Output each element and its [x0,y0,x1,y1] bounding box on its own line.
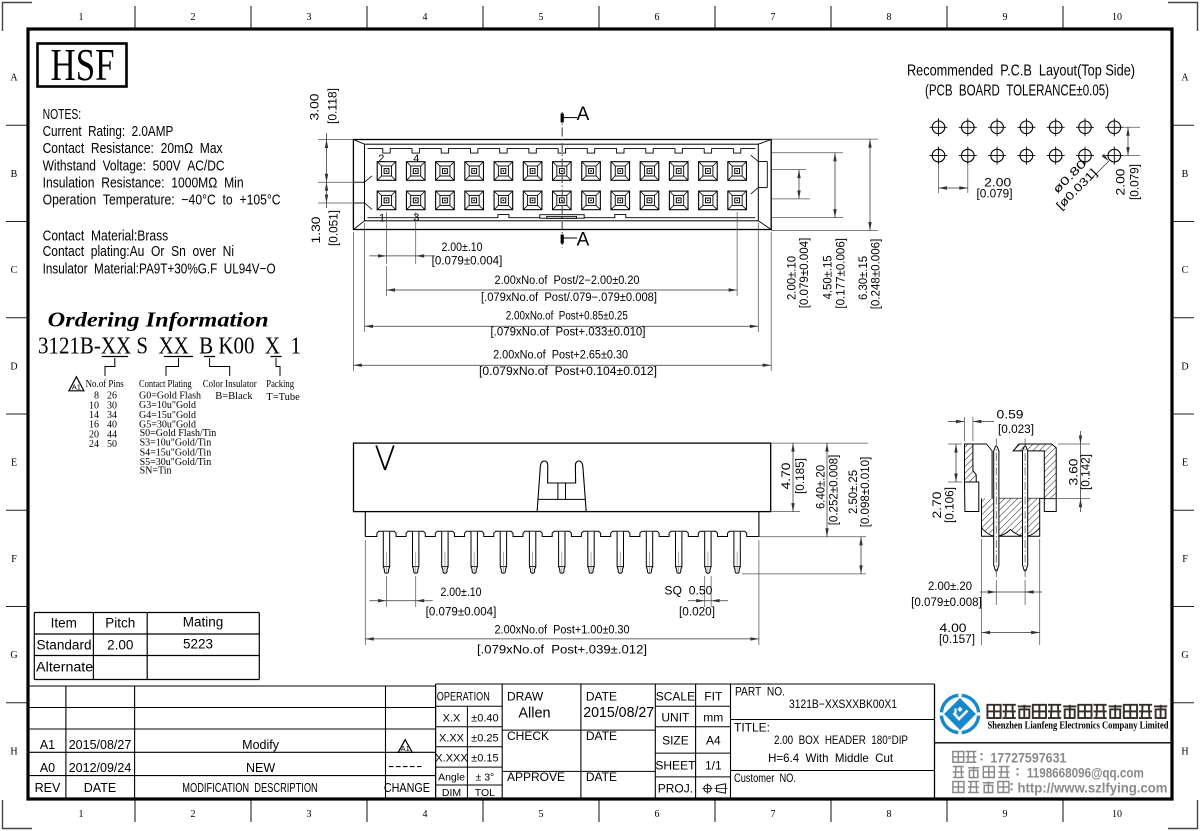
svg-text:E: E [1182,458,1188,469]
svg-text:Mating: Mating [183,615,224,630]
svg-text:SHEET: SHEET [655,759,696,773]
svg-text:3.00: 3.00 [310,94,322,121]
svg-text:2.00xNo.of Post+0.85±0.25: 2.00xNo.of Post+0.85±0.25 [506,310,628,322]
svg-text:APPROVE: APPROVE [507,770,565,784]
svg-text:SIZE: SIZE [662,734,689,748]
svg-text:PART NO.: PART NO. [735,685,785,699]
svg-text:[0.098±0.010]: [0.098±0.010] [860,457,872,528]
svg-text:B=Black: B=Black [215,391,253,402]
svg-text:4.50±.15: 4.50±.15 [823,255,835,299]
svg-text:2.00 BOX HEADER 180°DIP: 2.00 BOX HEADER 180°DIP [774,733,908,747]
svg-text:Ordering Information: Ordering Information [48,307,269,331]
svg-text:24: 24 [89,439,99,450]
svg-text:2.00: 2.00 [1115,169,1127,196]
svg-text:A: A [577,230,590,251]
svg-text:8: 8 [887,809,892,820]
svg-text:0.59: 0.59 [997,410,1024,422]
svg-text:[0.106]: [0.106] [945,487,957,523]
svg-text:SCALE: SCALE [656,690,695,704]
svg-text:Recommended P.C.B Layout(Top: Recommended P.C.B Layout(Top Side) [907,63,1135,80]
svg-text:[0.079±0.004]: [0.079±0.004] [799,238,811,309]
svg-text:A: A [577,104,590,125]
svg-text:SQ 0.50: SQ 0.50 [664,586,712,598]
svg-text:1/1: 1/1 [705,759,722,773]
svg-text:F: F [1182,554,1188,565]
svg-text:Contact Resistance: 20mΩ Ma: Contact Resistance: 20mΩ Max [43,141,224,157]
svg-text:[0.051]: [0.051] [328,210,340,246]
svg-text:3: 3 [413,212,419,224]
svg-text:X.XX: X.XX [439,732,465,744]
svg-text:2.70: 2.70 [932,492,944,519]
svg-text:1.30: 1.30 [311,217,323,244]
svg-text:H: H [10,746,17,757]
svg-text:[0.079±0.008]: [0.079±0.008] [911,597,982,609]
svg-text:TITLE:: TITLE: [734,721,770,735]
svg-text:6: 6 [655,809,660,820]
svg-text:[0.020]: [0.020] [679,607,715,619]
svg-text:REV: REV [35,781,61,795]
svg-text:Pitch: Pitch [105,616,135,631]
svg-text:A1: A1 [401,744,410,753]
svg-text:9: 9 [1003,12,1008,23]
svg-text:D: D [1181,361,1188,372]
svg-text:17727597631: 17727597631 [990,750,1066,765]
svg-text:5: 5 [539,12,544,23]
svg-text:[0.185]: [0.185] [795,458,807,494]
svg-text:10: 10 [1112,12,1122,23]
svg-text:T=Tube: T=Tube [266,392,300,403]
svg-text:No.of Pins: No.of Pins [86,379,124,390]
svg-text:6.30±.15: 6.30±.15 [858,256,870,300]
svg-text:Operation Temperature: −40°C: Operation Temperature: −40°C to +105°C [43,192,281,208]
svg-text:2.00xNo.of Post+1.00±0.30: 2.00xNo.of Post+1.00±0.30 [495,625,630,637]
svg-text:1: 1 [79,809,84,820]
svg-text:4: 4 [413,153,419,165]
svg-text:[0.248±0.006]: [0.248±0.006] [871,239,883,310]
svg-text:6: 6 [655,12,660,23]
svg-text:Angle: Angle [438,771,465,783]
svg-text:TOL: TOL [475,787,495,799]
svg-text:Withstand Voltage: 500V AC/: Withstand Voltage: 500V AC/DC [43,158,225,174]
svg-text:A: A [1181,73,1189,84]
svg-text:[0.177±0.006]: [0.177±0.006] [836,238,848,309]
svg-text:NOTES:: NOTES: [43,107,82,123]
svg-text:[0.118]: [0.118] [328,88,340,124]
svg-text:CHECK: CHECK [507,729,549,743]
svg-text:(PCB BOARD TOLERANCE±0.05): (PCB BOARD TOLERANCE±0.05) [925,83,1109,100]
svg-text:X.XXX: X.XXX [435,752,468,764]
svg-text:G: G [10,650,17,661]
svg-text:DIM: DIM [442,787,461,799]
svg-text:OPERATION: OPERATION [437,690,490,704]
svg-text:3121B-XX S XX B K00 X 1: 3121B-XX S XX B K00 X 1 [38,334,301,360]
svg-text:6.40±.20: 6.40±.20 [816,465,828,509]
svg-text:2.00xNo.of Post/2−2.00±0.20: 2.00xNo.of Post/2−2.00±0.20 [495,275,640,287]
svg-text:4.70: 4.70 [781,463,793,490]
svg-text:DATE: DATE [586,770,617,784]
svg-text:2.00±.10: 2.00±.10 [441,587,482,599]
svg-text:DRAW: DRAW [507,690,544,704]
svg-text:±0.40: ±0.40 [471,712,498,724]
svg-text:[0.252±0.008]: [0.252±0.008] [829,455,841,526]
svg-text:Alternate: Alternate [36,660,93,675]
svg-text:E: E [11,458,17,469]
svg-text:8: 8 [887,12,892,23]
svg-text:Shenzhen Lianfeng Electronics: Shenzhen Lianfeng Electronics Company Li… [988,721,1169,732]
svg-text:mm: mm [703,710,723,724]
svg-text:[0.079±0.004]: [0.079±0.004] [432,255,503,267]
svg-text:G: G [1181,650,1188,661]
svg-text:Insulation Resistance: 1000M: Insulation Resistance: 1000MΩ Min [43,175,244,191]
svg-text:[0.157]: [0.157] [939,634,975,646]
svg-text:7: 7 [771,809,776,820]
svg-text:[0.079]: [0.079] [1129,164,1141,200]
svg-text:± 3°: ± 3° [476,771,495,783]
svg-text:7: 7 [771,12,776,23]
svg-text:B: B [11,169,18,180]
svg-text:A1: A1 [72,382,81,391]
svg-text:A1: A1 [40,738,55,752]
svg-text:2: 2 [378,153,384,165]
svg-text:3.60: 3.60 [1069,459,1081,486]
svg-text:B: B [1182,169,1189,180]
svg-text:2.50±.25: 2.50±.25 [848,470,860,514]
svg-text:2: 2 [191,809,196,820]
svg-text:CHANGE: CHANGE [384,781,430,795]
svg-text:Allen: Allen [518,706,550,722]
svg-text:2.00±.10: 2.00±.10 [442,242,483,254]
svg-text:3: 3 [307,809,312,820]
svg-text:DATE: DATE [84,781,116,795]
svg-text:FIT: FIT [704,690,723,704]
svg-text:SN=Tin: SN=Tin [140,465,172,476]
svg-text:Color Insulator: Color Insulator [203,379,257,390]
svg-text:F: F [11,554,17,565]
svg-text:[0.079]: [0.079] [977,188,1013,200]
svg-text:Contact Plating: Contact Plating [139,379,192,390]
svg-text:2.00±.20: 2.00±.20 [928,581,972,593]
svg-text:HSF: HSF [51,39,115,90]
svg-text:2015/08/27: 2015/08/27 [583,705,654,721]
svg-text:Insulator Material:PA9T+30%G.: Insulator Material:PA9T+30%G.F UL94V−O [43,261,276,277]
svg-text:4: 4 [423,809,428,820]
svg-text:A4: A4 [706,734,721,748]
svg-text:A0: A0 [40,761,55,775]
svg-text:UNIT: UNIT [661,710,690,724]
svg-text:2015/08/27: 2015/08/27 [69,738,132,752]
svg-text:5223: 5223 [183,637,213,652]
svg-text:DATE: DATE [586,690,617,704]
svg-text:Contact plating:Au Or Sn o: Contact plating:Au Or Sn over Ni [43,244,234,260]
svg-text:[0.079xNo.of Post+0.104±0.012: [0.079xNo.of Post+0.104±0.012] [479,366,657,378]
svg-text:[0.142]: [0.142] [1081,454,1093,490]
svg-text:D: D [10,361,17,372]
svg-text:9: 9 [1003,809,1008,820]
svg-text:H=6.4 With Middle Cut: H=6.4 With Middle Cut [768,751,894,765]
svg-text:Item: Item [51,616,77,631]
svg-text:2.00±.10: 2.00±.10 [786,256,798,300]
svg-text:[.079xNo.of Post+.033±0.010]: [.079xNo.of Post+.033±0.010] [491,327,646,339]
svg-text:1: 1 [379,213,385,225]
svg-text:NEW: NEW [246,761,275,775]
svg-text:2012/09/24: 2012/09/24 [69,761,132,775]
svg-text:C: C [11,265,18,276]
svg-text:X.X: X.X [443,712,461,724]
svg-text:A: A [10,73,18,84]
svg-text:Standard: Standard [37,637,92,652]
svg-text:[0.079±0.004]: [0.079±0.004] [426,607,497,619]
svg-text:[0.023]: [0.023] [998,424,1034,436]
svg-text:1198668096@qq.com: 1198668096@qq.com [1027,765,1144,780]
svg-text:10: 10 [1112,809,1122,820]
svg-text:5: 5 [539,809,544,820]
svg-text:Current Rating: 2.0AMP: Current Rating: 2.0AMP [43,124,174,140]
svg-text:4: 4 [423,12,428,23]
svg-text:±0.15: ±0.15 [471,752,498,764]
svg-text:Customer NO.: Customer NO. [734,771,796,785]
svg-text:MODIFICATION DESCRIPTION: MODIFICATION DESCRIPTION [182,781,318,795]
svg-text:Modify: Modify [242,738,280,752]
svg-text:Contact Material:Brass: Contact Material:Brass [43,228,169,244]
svg-text:DATE: DATE [586,729,617,743]
svg-text:±0.25: ±0.25 [471,732,498,744]
svg-text:3121B−XXSXXBK00X1: 3121B−XXSXXBK00X1 [789,697,897,711]
svg-text:http://www.szlfying.com: http://www.szlfying.com [1018,780,1168,795]
svg-text:PROJ.: PROJ. [658,782,693,796]
svg-text:2: 2 [191,12,196,23]
svg-text:H: H [1181,746,1188,757]
svg-text:3: 3 [307,12,312,23]
svg-text:[.079xNo.of Post+.039±.012]: [.079xNo.of Post+.039±.012] [477,645,647,657]
svg-text:1: 1 [79,12,84,23]
svg-text:C: C [1182,265,1189,276]
svg-text:2.00: 2.00 [107,637,133,652]
svg-text:50: 50 [107,439,117,450]
svg-text:Packing: Packing [266,379,294,390]
svg-text:2.00xNo.of Post+2.65±0.30: 2.00xNo.of Post+2.65±0.30 [493,350,628,362]
svg-text:[.079xNo.of Post/.079−.079±0.: [.079xNo.of Post/.079−.079±0.008] [481,292,657,304]
